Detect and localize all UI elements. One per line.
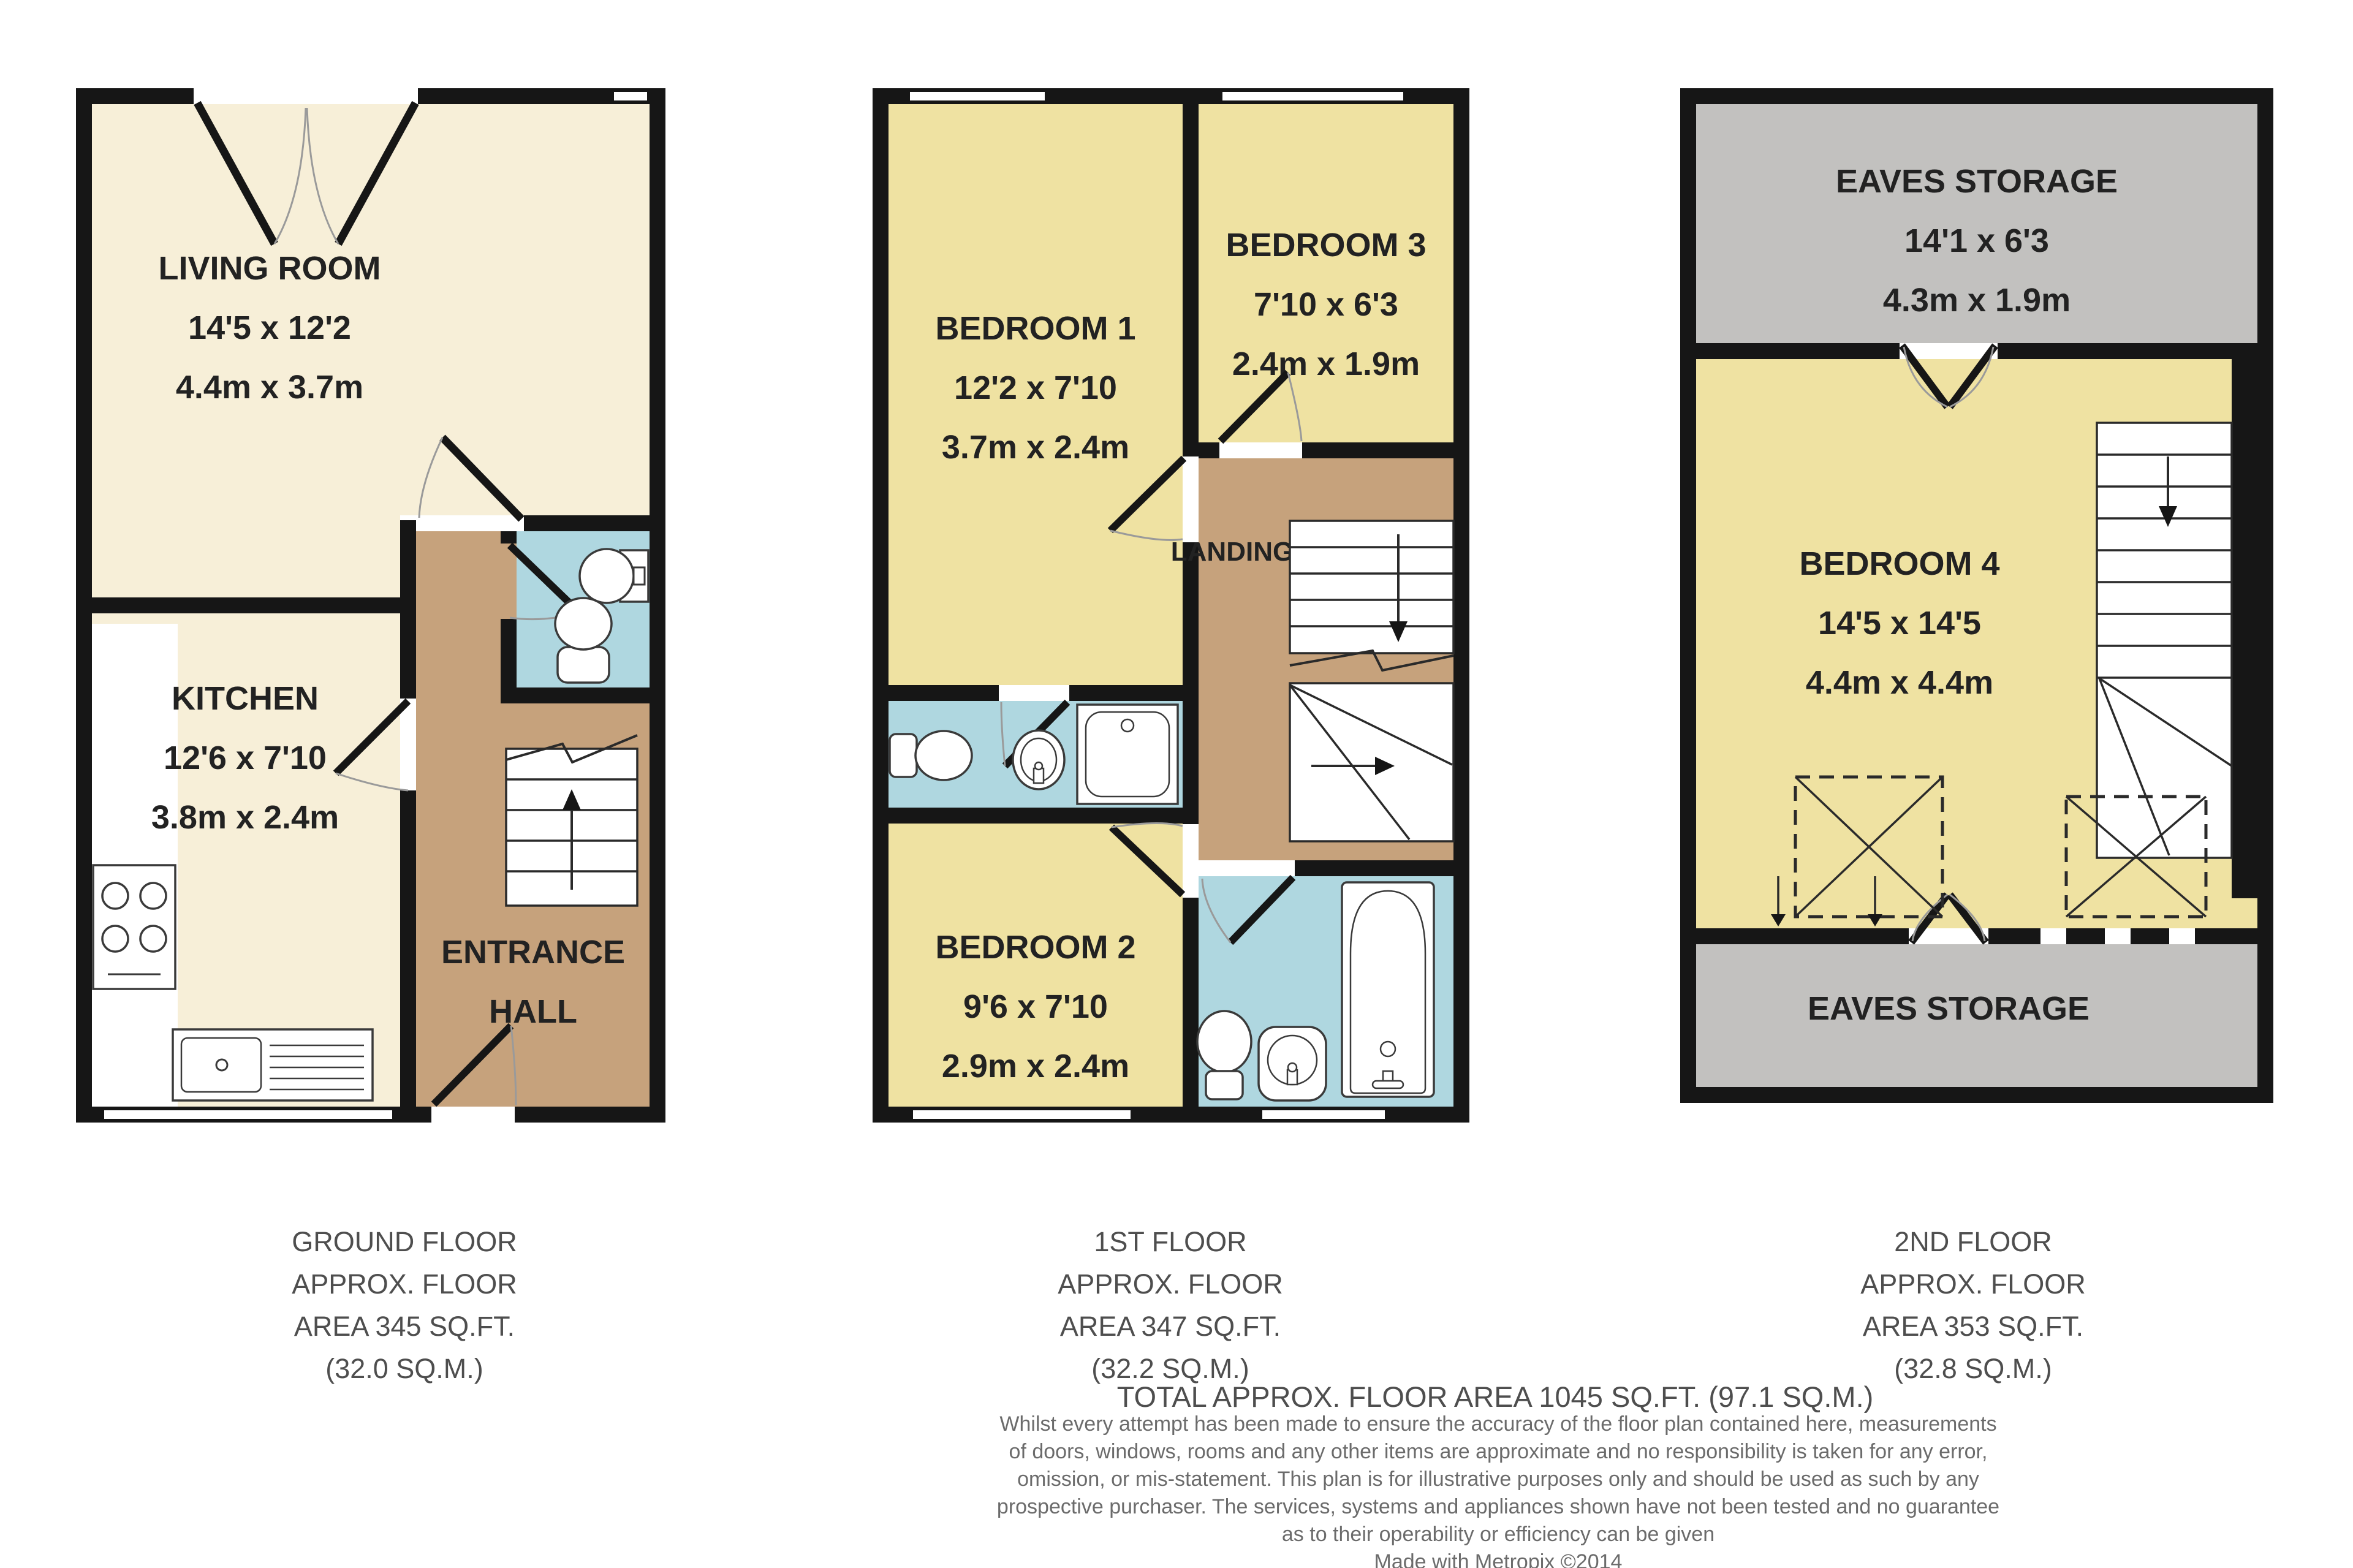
- stairs-icon: [1290, 521, 1453, 841]
- second-floor-caption: 2ND FLOOR APPROX. FLOOR AREA 353 SQ.FT. …: [1789, 1221, 2157, 1390]
- ground-floor-caption: GROUND FLOOR APPROX. FLOOR AREA 345 SQ.F…: [221, 1221, 588, 1390]
- disclaimer-line: Whilst every attempt has been made to en…: [870, 1411, 2126, 1438]
- first-floor-caption: 1ST FLOOR APPROX. FLOOR AREA 347 SQ.FT. …: [987, 1221, 1354, 1390]
- bedroom3-door-icon: [1221, 373, 1302, 441]
- bath-icon: [1342, 882, 1434, 1097]
- credit-line: Made with Metropix ©2014: [870, 1548, 2126, 1568]
- hob-icon: [93, 865, 175, 989]
- disclaimer-line: of doors, windows, rooms and any other i…: [870, 1438, 2126, 1466]
- caption-line: AREA 345 SQ.FT.: [221, 1305, 588, 1347]
- kitchen-door-icon: [336, 701, 408, 790]
- front-door-icon: [434, 1026, 516, 1105]
- bathroom-door-icon: [1202, 877, 1293, 942]
- stairs-icon: [2097, 423, 2232, 858]
- caption-line: GROUND FLOOR: [221, 1221, 588, 1263]
- toilet-icon: [555, 598, 612, 683]
- caption-line: 2ND FLOOR: [1789, 1221, 2157, 1263]
- total-floor-area: TOTAL APPROX. FLOOR AREA 1045 SQ.FT. (97…: [882, 1380, 2108, 1414]
- french-doors-icon: [197, 103, 415, 244]
- roof-slope-arrows: [1778, 876, 1875, 917]
- sink-icon: [1013, 730, 1064, 789]
- roof-arrow: [1868, 914, 1882, 926]
- stairs-icon: [506, 735, 637, 906]
- sink-icon: [1259, 1027, 1326, 1100]
- eaves-double-door-icon: [1911, 895, 1986, 942]
- bedroom2-door-icon: [1112, 823, 1183, 895]
- caption-line: AREA 347 SQ.FT.: [987, 1305, 1354, 1347]
- french-doors-arcs: [275, 108, 338, 244]
- kitchen-sink-icon: [173, 1029, 373, 1100]
- bedroom1-door-icon: [1110, 458, 1184, 540]
- disclaimer-line: as to their operability or efficiency ca…: [870, 1521, 2126, 1548]
- caption-line: APPROX. FLOOR: [987, 1263, 1354, 1305]
- shower-tray-icon: [1077, 705, 1178, 804]
- toilet-icon: [1197, 1011, 1251, 1099]
- skylight-icon: [1795, 777, 1942, 917]
- sink-icon: [580, 549, 648, 603]
- caption-line: (32.0 SQ.M.): [221, 1347, 588, 1390]
- roof-arrow: [1771, 914, 1786, 926]
- caption-line: 1ST FLOOR: [987, 1221, 1354, 1263]
- caption-line: APPROX. FLOOR: [221, 1263, 588, 1305]
- eaves-double-door-icon: [1902, 346, 1995, 407]
- caption-line: AREA 353 SQ.FT.: [1789, 1305, 2157, 1347]
- floor-plan-image: LIVING ROOM 14'5 x 12'2 4.4m x 3.7m KITC…: [0, 0, 2353, 1568]
- toilet-icon: [890, 731, 972, 780]
- disclaimer-line: prospective purchaser. The services, sys…: [870, 1493, 2126, 1521]
- caption-line: APPROX. FLOOR: [1789, 1263, 2157, 1305]
- living-room-door-icon: [419, 437, 521, 519]
- disclaimer-line: omission, or mis-statement. This plan is…: [870, 1466, 2126, 1493]
- disclaimer: Whilst every attempt has been made to en…: [870, 1411, 2126, 1568]
